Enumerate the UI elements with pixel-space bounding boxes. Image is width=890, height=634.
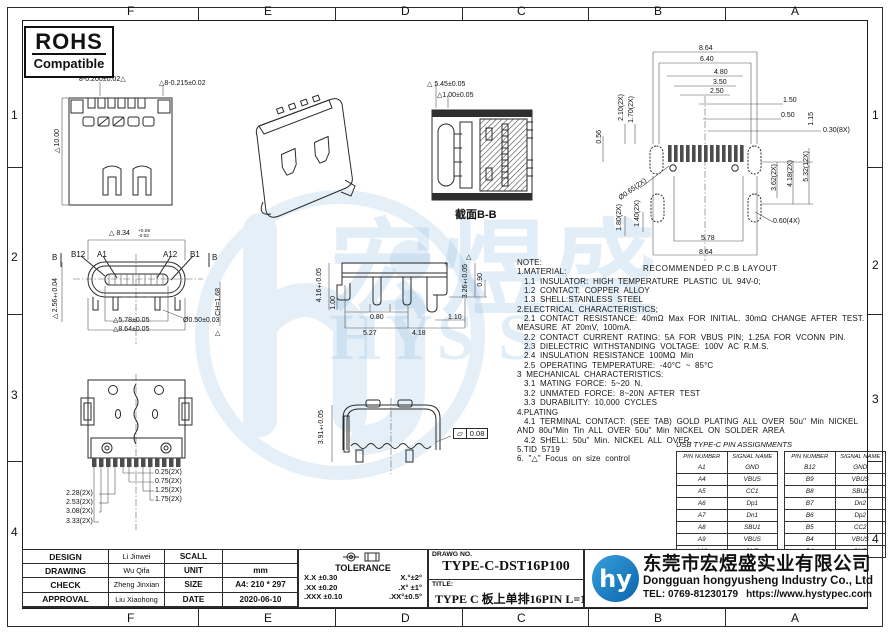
pin-assignment-section: USB TYPE-C PIN ASSIGNMENTS PIN NUMBER SI… <box>676 440 888 558</box>
dim-label: 1.50 <box>783 97 797 105</box>
pin-table-cell: VBUS <box>835 474 886 485</box>
pin-table-row: B7Dn2 <box>785 497 885 509</box>
dim-label: 0.30(8X) <box>823 127 850 135</box>
approval-label: CHECK <box>23 578 109 592</box>
notes-block: NOTE: 1.MATERIAL: 1.1 INSULATOR: HIGH TE… <box>517 258 887 464</box>
view-section-bb: △ 5.45±0.05 △1.00±0.05 截面B-B <box>424 78 542 220</box>
company-url[interactable]: https://www.hystypec.com <box>746 589 872 600</box>
section-marker-b-left: B <box>52 254 57 262</box>
pin-table-row: B5CC2 <box>785 521 885 533</box>
tolerance-cell: .XXX ±0.10 <box>304 592 342 602</box>
drawing-number-value: TYPE-C-DST16P100 <box>429 559 583 575</box>
pin-table-cell: B12 <box>785 462 835 473</box>
pin-table-cell: B4 <box>785 534 835 545</box>
approval-value <box>223 550 299 564</box>
zone-tick <box>588 8 589 20</box>
zone-tick <box>335 8 336 20</box>
dim-label: 2.53(2X) <box>66 499 93 507</box>
zone-letter-top: B <box>654 4 662 18</box>
dim-label: 4.80 <box>714 69 728 77</box>
pin-table-row: B8SBU2 <box>785 485 885 497</box>
zone-tick <box>725 8 726 20</box>
approval-field: UNIT <box>165 564 223 578</box>
dim-label: 0.90 <box>477 273 485 287</box>
pin-table-row: A9VBUS <box>677 533 777 545</box>
flatness-value: 0.08 <box>467 429 488 438</box>
zone-tick <box>198 8 199 20</box>
drawing-sheet: F E D C B A F E D C B A 1 2 3 4 1 2 3 4 … <box>0 0 890 634</box>
pin-table-title: USB TYPE-C PIN ASSIGNMENTS <box>676 440 888 449</box>
zone-letter-bottom: E <box>264 611 272 625</box>
pin-table-cell: B5 <box>785 522 835 533</box>
drawing-number-row: DRAWG NO. TYPE-C-DST16P100 <box>429 550 583 579</box>
dim-label: △ <box>215 330 220 338</box>
third-angle-projection-icon <box>299 550 427 562</box>
dim-label: 5.78 <box>701 235 715 243</box>
pin-table-cell: Dn2 <box>835 498 886 509</box>
view-perspective <box>237 84 365 234</box>
dim-label: △ <box>466 254 471 262</box>
company-name-cn: 东莞市宏煜盛实业有限公司 <box>643 553 867 574</box>
pin-table-row: B9VBUS <box>785 473 885 485</box>
view-side: 4.16±0.05 1.00 0.80 1.10 5.27 4.18 △ 3.2… <box>315 240 500 352</box>
section-bb-label: 截面B-B <box>455 206 497 222</box>
zone-tick <box>335 608 336 626</box>
pin-table-header: PIN NUMBER SIGNAL NAME <box>785 452 885 462</box>
tolerance-cell: .X° ±1° <box>398 583 422 593</box>
drawing-number-block: DRAWG NO. TYPE-C-DST16P100 TITLE: TYPE C… <box>428 549 584 608</box>
zone-letter-top: D <box>401 4 410 18</box>
company-logo: hy <box>592 555 639 602</box>
drawing-title-row: TITLE: TYPE C 板上单排16PIN L=10.0MM有弹片 <box>429 579 583 608</box>
dim-label: 4.18(2X) <box>787 160 795 187</box>
dim-label: 6.40 <box>700 56 714 64</box>
view-bottom: 0.25(2X) 0.75(2X) 1.25(2X) 1.75(2X) 2.28… <box>55 372 255 534</box>
zone-letter-bottom: F <box>127 611 134 625</box>
rohs-title: ROHS <box>32 30 106 55</box>
zone-tick <box>8 167 22 168</box>
view-front: △ 8.34 +0.06-0.02 B12 A1 A12 B1 B B ▷2.5… <box>35 226 240 346</box>
zone-letter-top: A <box>791 4 799 18</box>
dim-label: 8.64 <box>699 249 713 257</box>
company-tel: TEL: 0769-81230179 <box>643 589 738 600</box>
dim-label: 3.08(2X) <box>66 508 93 516</box>
section-marker-b-right: B <box>212 254 217 262</box>
zone-letter-top: C <box>517 4 526 18</box>
dim-label: 1.25(2X) <box>155 487 182 495</box>
pin-table-cell: SBU2 <box>835 486 886 497</box>
dim-label: △8.64±0.05 <box>113 326 149 334</box>
zone-tick <box>725 608 726 626</box>
pin-table-row: A6Dp1 <box>677 497 777 509</box>
dim-label: 1.15 <box>808 112 816 126</box>
pin-table-cell: B6 <box>785 510 835 521</box>
pin-table-cell: Dp1 <box>727 498 778 509</box>
pin-table-row: A7Dn1 <box>677 509 777 521</box>
pin-table-cell: CC2 <box>835 522 886 533</box>
pin-table-rows: B12GNDB9VBUSB8SBU2B7Dn2B6Dp2B5CC2B4VBUSB… <box>785 462 885 557</box>
dim-label: 8.64 <box>699 45 713 53</box>
tolerance-cell: X.X ±0.30 <box>304 573 337 583</box>
approval-name: Liu Xiaohong <box>109 593 165 607</box>
zone-tick <box>588 608 589 626</box>
pin-table-cell: B7 <box>785 498 835 509</box>
approval-value: mm <box>223 564 299 578</box>
zone-letter-bottom: C <box>517 611 526 625</box>
dim-label: 2.50 <box>710 88 724 96</box>
pin-table-row: B4VBUS <box>785 533 885 545</box>
pin-table-cell: B9 <box>785 474 835 485</box>
pin-table-cell: A5 <box>677 486 727 497</box>
zone-tick <box>462 608 463 626</box>
approval-value: A4: 210 * 297 <box>223 578 299 592</box>
pin-table-cell: A7 <box>677 510 727 521</box>
approval-table: DESIGN Li Jinwei SCALL DRAWING Wu Qifa U… <box>22 549 298 608</box>
zone-number-left: 3 <box>11 388 18 402</box>
dim-label: 2.10(2X) <box>618 94 626 121</box>
pin-table-cell: Dp2 <box>835 510 886 521</box>
zone-tick <box>462 8 463 20</box>
approval-label: DESIGN <box>23 550 109 564</box>
approval-name: Li Jinwei <box>109 550 165 564</box>
dim-label: 1.00 <box>330 296 338 310</box>
pin-table-row: A5CC1 <box>677 485 777 497</box>
approval-label: APPROVAL <box>23 593 109 607</box>
dim-label: 1.40(2X) <box>634 200 642 227</box>
dim-label: 1.80(2X) <box>616 204 624 231</box>
drawing-number-label: DRAWG NO. <box>432 551 472 558</box>
pin-table-right: PIN NUMBER SIGNAL NAME B12GNDB9VBUSB8SBU… <box>784 451 886 558</box>
pin-table-cell: VBUS <box>727 534 778 545</box>
dim-label: 0.60(4X) <box>773 218 800 226</box>
dim-label: 3.50 <box>713 79 727 87</box>
zone-number-left: 4 <box>11 525 18 539</box>
pin-table-cell: GND <box>727 462 778 473</box>
company-block: hy 东莞市宏煜盛实业有限公司 Dongguan hongyusheng Ind… <box>584 549 868 608</box>
approval-name: Wu Qifa <box>109 564 165 578</box>
dim-label: △ 5.45±0.05 <box>427 81 465 89</box>
pin-table-cell: B8 <box>785 486 835 497</box>
tolerance-cell: X.°±2° <box>400 573 422 583</box>
pin-label-a12: A12 <box>163 251 177 259</box>
zone-tick <box>198 608 199 626</box>
dim-label: 0.75(2X) <box>155 478 182 486</box>
approval-name: Zheng Jinxian <box>109 578 165 592</box>
dim-label: ▷10.00 <box>54 129 62 155</box>
approval-label: DRAWING <box>23 564 109 578</box>
pin-table-cell: Dn1 <box>727 510 778 521</box>
dim-label: Ø0.50±0.03 <box>183 317 220 325</box>
zone-letter-bottom: A <box>791 611 799 625</box>
dim-label: 5.27 <box>363 330 377 338</box>
dim-label: 3.26±0.05 <box>462 264 470 298</box>
approval-value: 2020-06-10 <box>223 593 299 607</box>
zone-letter-bottom: B <box>654 611 662 625</box>
tolerance-block: TOLERANCE X.X ±0.30X.°±2° .XX ±0.20.X° ±… <box>298 549 428 608</box>
approval-field: SIZE <box>165 578 223 592</box>
pin-table-cell: VBUS <box>835 534 886 545</box>
dim-label: 3.33(2X) <box>66 518 93 526</box>
pin-table-cell: SBU1 <box>727 522 778 533</box>
dim-label: CH=1.68 <box>215 288 223 316</box>
pin-table-cell: A4 <box>677 474 727 485</box>
pin-table-cell: A1 <box>677 462 727 473</box>
view-top: 8-0.200±0.02△ △8-0.215±0.02 ▷10.00 <box>55 74 245 219</box>
dim-label: 3.91±0.05 <box>318 410 326 444</box>
pin-table-cell: A8 <box>677 522 727 533</box>
dim-label: 4.18 <box>412 330 426 338</box>
pin-table-row: B6Dp2 <box>785 509 885 521</box>
dim-label: △1.00±0.05 <box>437 92 473 100</box>
dim-label: 1.70(2X) <box>628 96 636 123</box>
dim-label: 0.50 <box>781 112 795 120</box>
zone-number-left: 1 <box>11 108 18 122</box>
zone-tick <box>8 314 22 315</box>
pin-label-b12: B12 <box>71 251 85 259</box>
dim-label: 3.62(2X) <box>771 164 779 191</box>
dim-label: 5.32(12X) <box>803 151 811 182</box>
company-name-en: Dongguan hongyusheng Industry Co., Ltd <box>643 574 867 588</box>
tolerance-title: TOLERANCE <box>299 563 427 573</box>
pin-label-b1: B1 <box>190 251 200 259</box>
drawing-title-label: TITLE: <box>432 581 453 588</box>
dim-label: ▷2.56±0.04 <box>52 278 60 320</box>
pin-table-cell: CC1 <box>727 486 778 497</box>
pin-table-cell: A6 <box>677 498 727 509</box>
pin-label-a1: A1 <box>97 251 107 259</box>
pin-table-row: A8SBU1 <box>677 521 777 533</box>
dim-label: △ 8.34 <box>109 230 130 238</box>
dim-label: 8-0.200±0.02△ <box>79 76 126 84</box>
zone-letter-top: F <box>127 4 134 18</box>
approval-field: SCALL <box>165 550 223 564</box>
pin-table-cell: VBUS <box>727 474 778 485</box>
dim-label: 1.10 <box>448 314 462 322</box>
dim-label: △8-0.215±0.02 <box>159 80 206 88</box>
pin-table-row: A4VBUS <box>677 473 777 485</box>
pin-table-rows: A1GNDA4VBUSA5CC1A6Dp1A7Dn1A8SBU1A9VBUSA1… <box>677 462 777 557</box>
pin-table-cell: GND <box>835 462 886 473</box>
zone-number-left: 2 <box>11 250 18 264</box>
zone-letter-bottom: D <box>401 611 410 625</box>
zone-letter-top: E <box>264 4 272 18</box>
rohs-subtitle: Compatible <box>34 56 105 71</box>
dim-label: 0.25(2X) <box>155 469 182 477</box>
tolerance-cell: .XX ±0.20 <box>304 583 337 593</box>
rohs-badge: ROHS Compatible <box>24 26 114 78</box>
dim-label: △5.78±0.05 <box>113 317 149 325</box>
approval-field: DATE <box>165 593 223 607</box>
tolerance-cell: .XX°±0.5° <box>389 592 422 602</box>
pin-table-cell: A9 <box>677 534 727 545</box>
flatness-callout: ▱ 0.08 <box>453 428 488 439</box>
dim-label: 0.80 <box>370 314 384 322</box>
pin-table-row: B12GND <box>785 462 885 473</box>
flatness-symbol: ▱ <box>454 429 467 438</box>
pin-table-left: PIN NUMBER SIGNAL NAME A1GNDA4VBUSA5CC1A… <box>676 451 778 558</box>
dim-tolerance-stack: +0.06-0.02 <box>138 229 150 239</box>
dim-label: 2.28(2X) <box>66 490 93 498</box>
pin-table-row: A1GND <box>677 462 777 473</box>
zone-tick <box>8 461 22 462</box>
dim-label: 0.56 <box>596 130 604 144</box>
dim-label: 4.16±0.05 <box>316 268 324 302</box>
view-rear: 3.91±0.05 ▱ 0.08 <box>318 398 498 476</box>
dim-label: 1.75(2X) <box>155 496 182 504</box>
pin-table-header: PIN NUMBER SIGNAL NAME <box>677 452 777 462</box>
